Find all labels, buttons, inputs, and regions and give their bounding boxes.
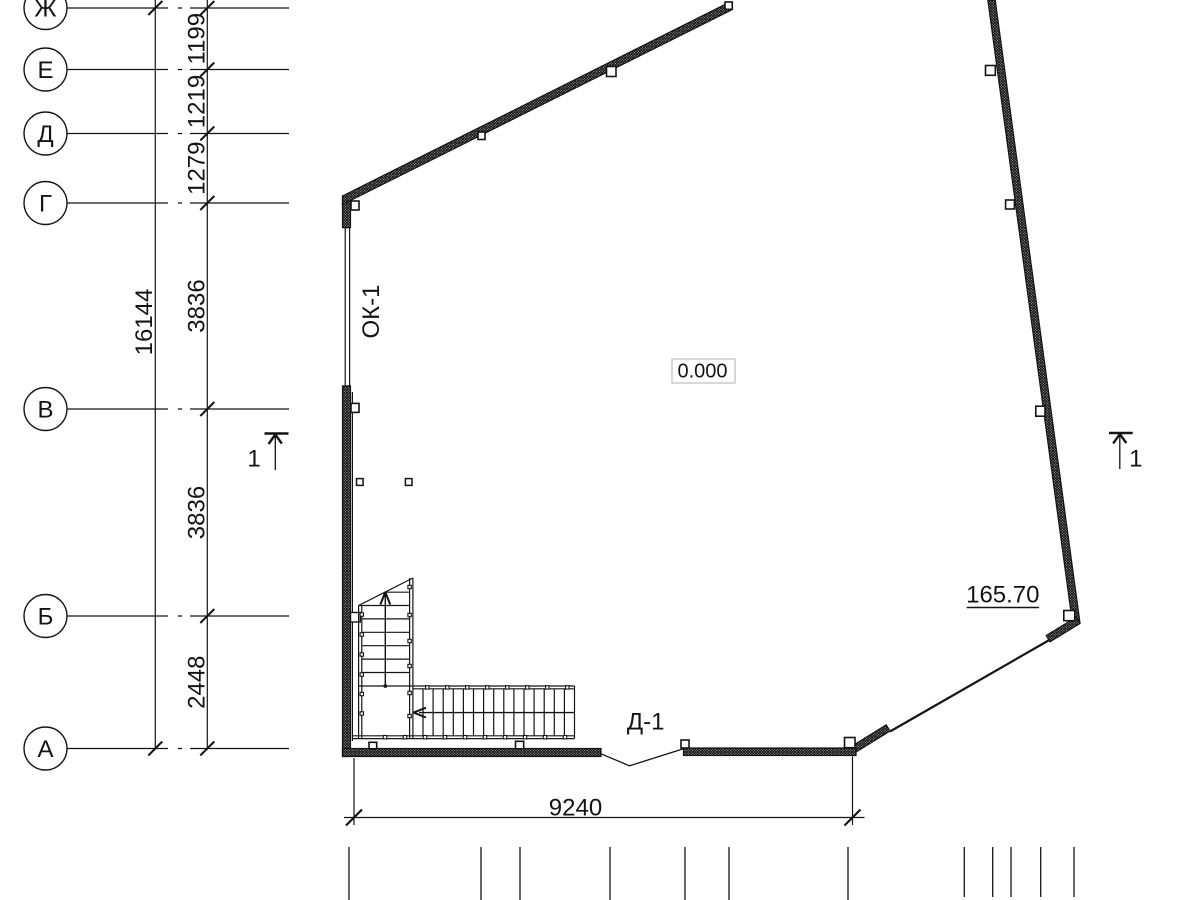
svg-text:3836: 3836: [184, 486, 211, 539]
svg-text:В: В: [37, 397, 53, 424]
svg-text:1: 1: [1129, 446, 1142, 473]
svg-text:Б: Б: [38, 604, 54, 631]
svg-text:Е: Е: [37, 57, 53, 84]
svg-text:0.000: 0.000: [677, 361, 727, 383]
svg-text:165.70: 165.70: [966, 582, 1039, 609]
svg-text:Г: Г: [39, 191, 52, 218]
svg-text:1: 1: [247, 446, 260, 473]
svg-text:1219: 1219: [184, 75, 211, 128]
svg-text:1199: 1199: [184, 13, 211, 65]
svg-text:2448: 2448: [184, 656, 211, 709]
svg-text:Д-1: Д-1: [627, 709, 665, 736]
svg-text:1279: 1279: [184, 142, 211, 195]
svg-text:Ж: Ж: [34, 0, 56, 23]
svg-text:9240: 9240: [549, 795, 602, 822]
svg-text:ОК-1: ОК-1: [358, 285, 385, 339]
svg-text:А: А: [37, 736, 53, 763]
svg-text:3836: 3836: [184, 279, 211, 332]
svg-text:Д: Д: [37, 121, 53, 148]
svg-text:16144: 16144: [131, 289, 158, 356]
